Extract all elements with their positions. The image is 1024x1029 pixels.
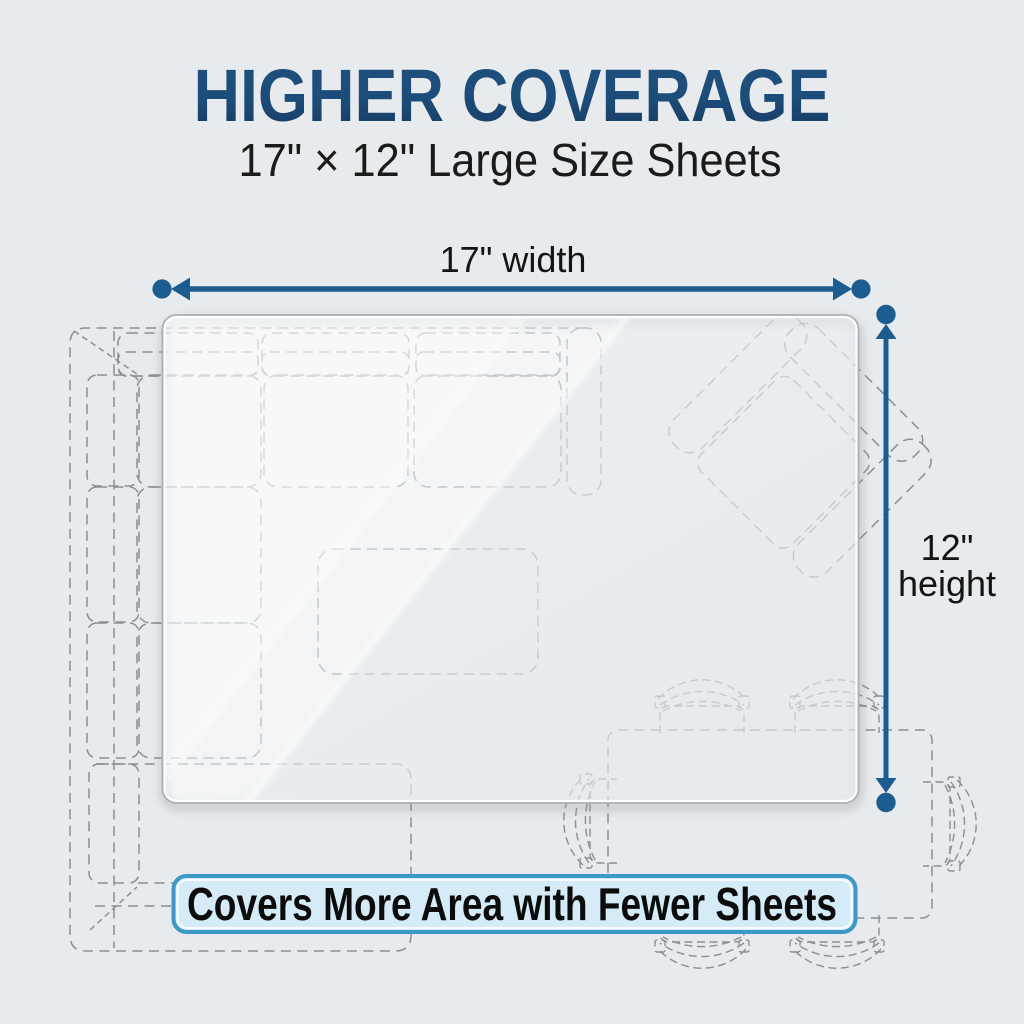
svg-text:Covers More Area with Fewer Sh: Covers More Area with Fewer Sheets	[187, 878, 837, 930]
svg-text:12": 12"	[921, 527, 974, 568]
svg-text:17" width: 17" width	[440, 239, 587, 280]
svg-text:17" × 12" Large Size Sheets: 17" × 12" Large Size Sheets	[239, 134, 782, 186]
svg-text:height: height	[898, 563, 996, 604]
svg-text:HIGHER COVERAGE: HIGHER COVERAGE	[194, 54, 831, 137]
